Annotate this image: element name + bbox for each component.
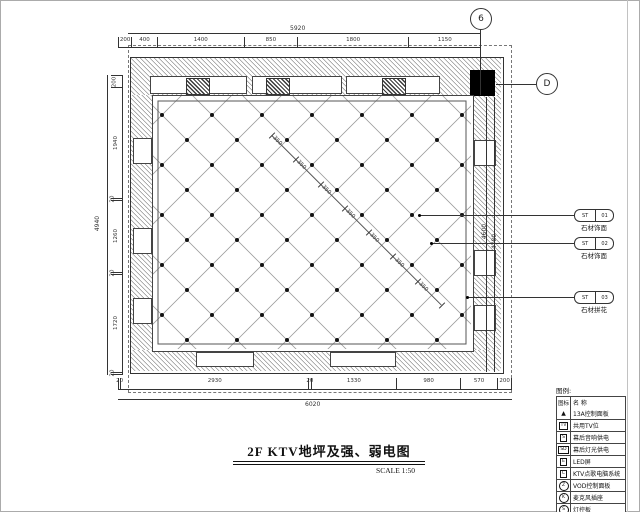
legend-symbol-triangle-icon: ▲ [557,408,571,419]
material-tag-code-number: 03 [596,292,613,303]
cad-drawing-page: 350350350350350350350 6 D 5920 200400140… [0,0,640,512]
dim-segment: 980 [396,378,460,389]
right-dim-1: 4600 [481,224,488,239]
page-edge-line [627,0,628,512]
grid-bubble-6-label: 6 [478,14,484,24]
left-overall-dim-line: 4940 [96,75,108,375]
dim-value: 1260 [113,229,119,243]
top-dim-chain: 200400140085018001150 [118,37,481,48]
material-tag-code-prefix: ST [575,292,596,303]
legend-row: SD幕后灯光供电 [557,443,625,455]
dim-value: 200 [111,76,117,87]
callout-anchor-dot [466,296,469,299]
legend-symbol-box-icon: SD [557,444,571,455]
drawing-title: 2F KTV地坪及强、弱电图 [233,441,425,460]
legend: 图例: 图标 名 称 ▲13A控制面板TV共用TV位S幕后音响供电SD幕后灯光供… [556,386,626,512]
material-tag-code-number: 01 [596,210,613,221]
dim-segment: 1150 [408,37,481,47]
callout-leader-line [432,243,574,244]
legend-rows: ▲13A控制面板TV共用TV位S幕后音响供电SD幕后灯光供电ELED屏CKTV点… [557,408,625,512]
dim-value: 1400 [194,37,208,43]
legend-symbol-glyph: SD [558,446,568,454]
legend-symbol-glyph: E [560,458,567,466]
dim-segment: 1260 [111,200,122,272]
legend-item-name: 共用TV位 [571,421,625,430]
scale-label: SCALE 1:50 [233,466,425,475]
dim-value: 20 [110,370,116,377]
right-wall-niche-1 [474,140,496,166]
bottom-overall-dim: 6020 [305,401,320,408]
bottom-overall-dim-line [118,399,512,400]
legend-symbol-glyph: C [560,470,567,478]
legend-row: TV共用TV位 [557,419,625,431]
top-pilaster-3 [382,78,406,95]
dim-segment: 1330 [311,378,397,389]
right-wall-niche-2 [474,250,496,276]
title-underline-2 [233,464,425,465]
dim-value: 1940 [113,136,119,150]
legend-item-name: 13A控制面板 [571,409,625,418]
left-wall-niche-3 [133,298,152,324]
dim-value: 200 [120,37,131,43]
material-tag-label: 石材饰面 [570,250,618,260]
right-dim-2: 4780 [491,234,498,249]
dim-segment: 2930 [120,378,308,389]
bottom-dim-chain: 202930201330980570200 [118,378,512,390]
legend-symbol-glyph: K [559,493,569,503]
left-wall-niche-2 [133,228,152,254]
diamond-floor-pattern [153,96,471,349]
legend-title: 图例: [556,386,626,396]
dim-segment: 1720 [111,274,122,372]
floor-area [152,95,474,352]
grid-bubble-6: 6 [470,8,492,30]
dim-segment: 850 [244,37,297,47]
material-tag-code-number: 02 [596,238,613,249]
bottom-wall-opening-1 [196,352,254,367]
legend-row: ELED屏 [557,455,625,467]
title-underline-1 [233,461,425,462]
legend-symbol-glyph: S [560,434,567,442]
material-tag-label: 石材饰面 [570,222,618,232]
legend-symbol-circle-icon: K [557,492,571,503]
material-tag: ST01 [574,209,614,222]
legend-symbol-glyph: ▲ [561,411,566,417]
bottom-wall-band [131,350,501,371]
callout-anchor-dot [430,242,433,245]
dim-segment: 20 [111,372,122,375]
dim-value: 570 [474,378,485,384]
legend-table: 图标 名 称 ▲13A控制面板TV共用TV位S幕后音响供电SD幕后灯光供电ELE… [556,396,626,512]
legend-item-name: 麦克风插座 [571,493,625,502]
legend-header-row: 图标 名 称 [557,397,625,408]
dim-value: 1330 [347,378,361,384]
dim-segment: 200 [497,378,512,389]
legend-row: ▲13A控制面板 [557,408,625,419]
left-overall-dim: 4940 [94,216,101,231]
legend-symbol-glyph: Z [559,481,569,491]
dim-segment: 1940 [111,87,122,197]
legend-symbol-glyph: S [559,505,569,512]
legend-item-name: VOD控制面板 [571,481,625,490]
legend-row: K麦克风插座 [557,491,625,503]
left-wall-niche-1 [133,138,152,164]
material-tag-code-prefix: ST [575,238,596,249]
dim-segment: 400 [131,37,157,47]
dim-segment: 1400 [157,37,244,47]
legend-symbol-box-icon: E [557,456,571,467]
legend-row: CKTV点歌电脑系统 [557,467,625,479]
callout-leader-line [468,297,574,298]
grid-axis-D-line [496,84,536,85]
legend-symbol-circle-icon: S [557,504,571,512]
legend-symbol-box-icon: S [557,432,571,443]
dim-value: 200 [499,378,510,384]
dim-segment: 200 [118,37,131,47]
dim-value: 1150 [438,37,452,43]
legend-item-name: 灯控板 [571,505,625,512]
dim-segment: 200 [111,75,122,87]
bottom-wall-opening-2 [330,352,396,367]
material-tag-label: 石材拼花 [570,304,618,314]
right-wall-niche-3 [474,305,496,331]
legend-symbol-box-icon: C [557,468,571,479]
grid-bubble-D: D [536,73,558,95]
title-block: 2F KTV地坪及强、弱电图 SCALE 1:50 [233,441,425,475]
legend-item-name: 幕后灯光供电 [571,445,625,454]
legend-item-name: LED屏 [571,457,625,466]
dim-value: 1720 [113,316,119,330]
legend-row: S幕后音响供电 [557,431,625,443]
legend-row: S灯控板 [557,503,625,512]
dim-value: 400 [139,37,150,43]
dim-value: 2930 [208,378,222,384]
callout-anchor-dot [418,214,421,217]
legend-item-name: KTV点歌电脑系统 [571,469,625,478]
grid-bubble-D-label: D [544,79,551,89]
legend-col-name: 名 称 [571,398,625,407]
left-dim-chain: 200194020126020172020 [111,75,123,375]
dim-segment: 1800 [297,37,408,47]
top-pilaster-2 [266,78,290,95]
dim-value: 1800 [346,37,360,43]
legend-symbol-glyph: TV [559,422,569,430]
top-overall-dim-line [128,33,481,34]
dim-segment: 570 [460,378,497,389]
material-tag: ST03 [574,291,614,304]
material-tag: ST02 [574,237,614,250]
legend-symbol-box-icon: TV [557,420,571,431]
dim-value: 980 [423,378,434,384]
structural-column [470,70,495,96]
legend-symbol-circle-icon: Z [557,480,571,491]
material-tag-code-prefix: ST [575,210,596,221]
legend-item-name: 幕后音响供电 [571,433,625,442]
legend-col-symbol: 图标 [557,397,571,408]
callout-leader-line [420,215,574,216]
top-overall-dim: 5920 [290,25,305,32]
top-pilaster-1 [186,78,210,95]
dim-value: 850 [266,37,277,43]
legend-row: ZVOD控制面板 [557,479,625,491]
